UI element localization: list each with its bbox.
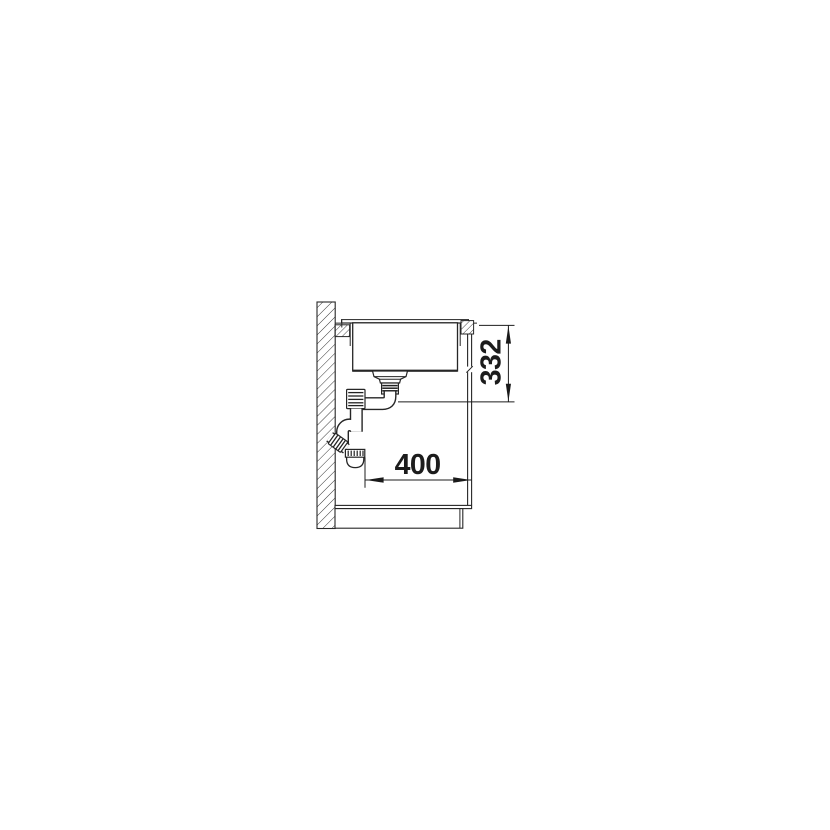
wall-section (317, 302, 335, 529)
countertop-right-section (461, 321, 474, 334)
dimension-label-332: 332 (476, 339, 508, 385)
siphon-trap (328, 389, 390, 467)
countertop-right (461, 321, 474, 334)
arrow-right-icon (453, 477, 471, 482)
trap-cup (347, 457, 364, 467)
arrow-left-icon (366, 477, 384, 482)
basin-body (353, 323, 458, 371)
dimension-horizontal-400: 400 (365, 449, 471, 488)
sink-basin (342, 320, 469, 371)
technical-drawing-page: 332 400 (0, 0, 830, 830)
sink-installation-side-view: 332 400 (0, 0, 830, 830)
arrow-down-icon (506, 384, 511, 402)
wall-hatch (317, 302, 335, 529)
dimension-label-400: 400 (395, 449, 441, 481)
drain-strainer (373, 371, 408, 394)
plinth-panel (335, 509, 463, 529)
